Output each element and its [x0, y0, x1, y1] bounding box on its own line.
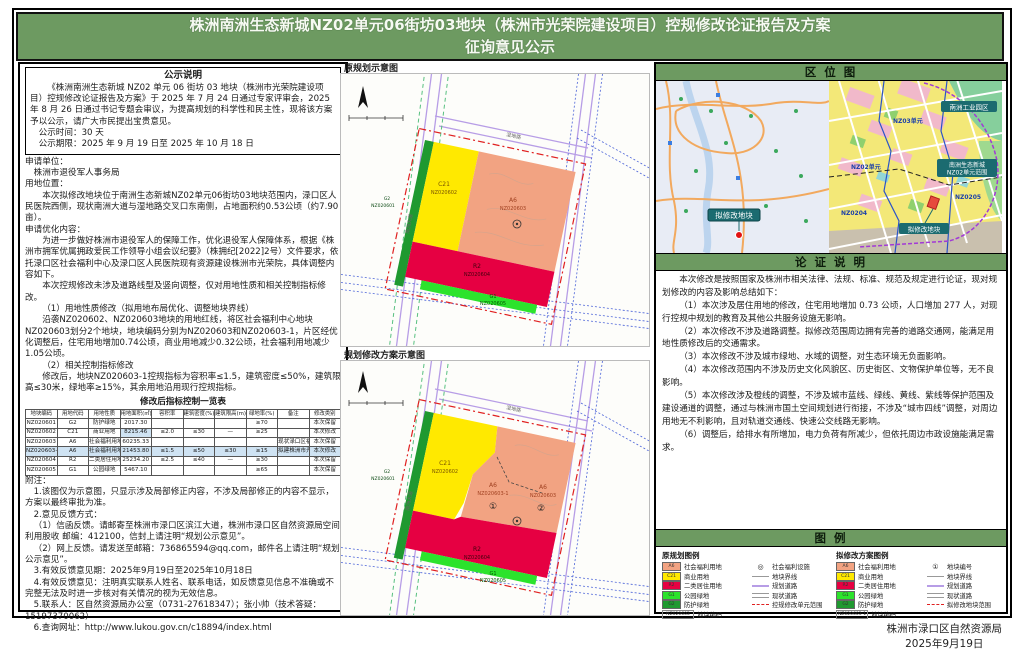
table-cell	[215, 419, 247, 428]
table-cell	[246, 438, 278, 447]
facility-marker-dot	[516, 520, 518, 522]
legend-entry: G1公园绿地	[836, 591, 923, 601]
legend-entry-label: 公园绿地	[858, 591, 883, 600]
legend-code-box: NZ020603	[662, 610, 694, 619]
table-cell: 本次修改	[309, 428, 341, 437]
parcel-g1-id: NZ020605	[480, 578, 506, 584]
unit-label-4: NZ0205	[955, 194, 981, 201]
table-cell: NZ020605	[26, 466, 58, 475]
paragraph: 株洲市退役军人事务局	[25, 168, 341, 179]
table-header-cell: 地块编码	[26, 410, 58, 419]
page-title-line2: 征询意见公示	[18, 37, 1002, 59]
paragraph: （1）用地性质修改（拟用地布局优化、调整地块界线）	[25, 304, 341, 315]
legend-group: 拟修改方案图例A6社会福利用地C21商业用地R2二类居住用地G1公园绿地G2防护…	[836, 549, 996, 627]
legend-entry: 控规修改单元范围	[752, 600, 822, 610]
notice-title: 公示说明	[30, 70, 336, 83]
footer-date: 2025年9月19日	[887, 637, 1003, 652]
zoning-callout-mid1: 南洲生态新城	[949, 161, 985, 169]
table-header-cell: 容积率	[152, 410, 184, 419]
parcel-g1-code: G1	[489, 294, 496, 300]
table-header-cell: 用地代码	[57, 410, 89, 419]
original-plan-map: C21 NZ020602 A6 NZ020603 R2 NZ020604 G1 …	[340, 73, 650, 347]
legend-entry: NZ020603地块编码	[662, 610, 748, 620]
paragraph: （2）本次修改不涉及道路调整。拟修改范围周边拥有完善的道路交通网，能满足用地性质…	[662, 326, 1000, 352]
legend-circle-icon: ①	[927, 563, 944, 571]
paragraph: 5.联系人：区自然资源局办公室（0731-27618347）；张小帅（技术答疑：…	[25, 600, 341, 623]
table-cell: 本次保留	[309, 438, 341, 447]
paragraph: 本次修改是按照国家及株洲市相关法律、法规、标准、规范及规定进行论证，现对规划修改…	[662, 274, 1000, 300]
table-header-cell: 建筑限高(m)	[215, 410, 247, 419]
legend-swatch: R2	[836, 581, 855, 590]
legend-entry-label: 社会福利设施	[772, 562, 810, 571]
table-cell: A6	[57, 447, 89, 456]
table-cell: 本次修改	[309, 447, 341, 456]
parcel-r2-id: NZ020604	[464, 555, 490, 561]
table-row: NZ020601G2防护绿地2017.30≥70本次保留	[26, 419, 341, 428]
table-header-cell: 建筑密度(%)	[183, 410, 215, 419]
table-cell: ≥25	[246, 428, 278, 437]
legend-columns: A6社会福利用地C21商业用地R2二类居住用地G1公园绿地G2防护绿地NZ020…	[836, 562, 996, 619]
modified-plan-map: C21 NZ020602 A6 NZ020603-1 ① A6 NZ020603…	[340, 360, 650, 616]
legend-swatch: R2	[662, 581, 681, 590]
table-cell: 拟建株洲市光荣院	[278, 447, 310, 456]
publicity-period: 公示期限：2025 年 9 月 19 日至 2025 年 10 月 18 日	[30, 139, 336, 150]
table-cell	[152, 466, 184, 475]
legend-group-title: 原规划图例	[662, 550, 822, 561]
legend-swatch: G1	[662, 591, 681, 600]
legend-swatch: C21	[662, 572, 681, 581]
footer: 株洲市渌口区自然资源局 2025年9月19日	[887, 622, 1003, 651]
legend-header: 图 例	[656, 529, 1006, 547]
legend-swatch: G2	[836, 600, 855, 609]
parcel-r2-code: R2	[473, 546, 481, 553]
table-cell	[278, 419, 310, 428]
table-header-cell: 备注	[278, 410, 310, 419]
legend-entry-label: 商业用地	[684, 572, 709, 581]
table-cell	[278, 428, 310, 437]
legend-entry: 地块界线	[927, 572, 996, 582]
legend-symbol-list: ①地块编号地块界线规划道路现状道路拟修改地块范围	[927, 562, 996, 619]
table-cell: 8215.46	[120, 428, 152, 437]
legend-entry: G2防护绿地	[662, 600, 748, 610]
table-cell: 本次保留	[309, 456, 341, 465]
site-marker-dot	[736, 232, 743, 239]
paragraph: 2.意见反馈方式：	[25, 510, 341, 521]
legend-line-icon	[927, 585, 944, 587]
table-header-cell: 用地性质	[89, 410, 121, 419]
table-cell	[278, 456, 310, 465]
table-cell: ≤2.0	[152, 428, 184, 437]
parcel-g2-code: G2	[384, 469, 390, 475]
table-cell: NZ020601	[26, 419, 58, 428]
paragraph: 申请单位：	[25, 157, 341, 168]
legend-entry: 拟修改地块范围	[927, 600, 996, 610]
table-cell: ≤2.5	[152, 456, 184, 465]
table-cell	[183, 466, 215, 475]
parcel-a6-id: NZ020603	[530, 493, 556, 499]
table-cell: ≤1.5	[152, 447, 184, 456]
table-cell: ≤40	[183, 456, 215, 465]
legend-entry: 规划道路	[752, 581, 822, 591]
table-cell: ≤30	[215, 447, 247, 456]
unit-label-3: NZ0204	[841, 210, 867, 217]
table-cell: 防护绿地	[89, 419, 121, 428]
table-cell: G1	[57, 466, 89, 475]
table-cell: 本次保留	[309, 466, 341, 475]
paragraph: 附注：	[25, 476, 341, 487]
table-cell	[278, 466, 310, 475]
table-cell: ≥15	[246, 447, 278, 456]
paragraph: 3.有效反馈意见期：2025年9月19日至2025年10月18日	[25, 566, 341, 577]
paragraph: （4）本次修改范围内不涉及历史文化风貌区、历史街区、文物保护单位等，无不良影响。	[662, 364, 1000, 390]
notice-box: 公示说明 《株洲南洲生态新城 NZ02 单元 06 街坊 03 地块（株洲市光荣…	[25, 67, 341, 155]
legend-symbol-list: ◎社会福利设施地块界线规划道路现状道路控规修改单元范围	[752, 562, 822, 619]
legend-line-icon	[927, 576, 944, 577]
paragraph: 沿袭NZ020602、NZ020603地块的用地红线，将区社会福利中心地块NZ0…	[25, 315, 341, 360]
legend-entry: C21商业用地	[836, 572, 923, 582]
parcel-a6b-code: A6	[489, 482, 497, 489]
legend-entry: 地块界线	[752, 572, 822, 582]
paragraph: 6.查询网址：http://www.lukou.gov.cn/c18894/in…	[25, 623, 341, 634]
paragraph: 4.有效反馈意见：注明真实联系人姓名、联系电话，如反馈意见信息不准确或不完整无法…	[25, 578, 341, 601]
legend-line-icon	[927, 593, 944, 598]
table-row: NZ020602C21商业用地8215.46≤2.0≤30—≥25本次修改	[26, 428, 341, 437]
legend-entry-label: 现状道路	[772, 591, 797, 600]
legend-entry-label: 社会福利用地	[858, 562, 896, 571]
zoning-callout-parcel: 拟修改地块	[908, 225, 941, 234]
unit-label-1: NZ03单元	[893, 117, 923, 125]
page-title-line1: 株洲南洲生态新城NZ02单元06街坊03地块（株洲市光荣院建设项目）控规修改论证…	[18, 15, 1002, 37]
legend-swatch-list: A6社会福利用地C21商业用地R2二类居住用地G1公园绿地G2防护绿地NZ020…	[662, 562, 748, 619]
legend-entry-label: 地块编码	[871, 610, 896, 619]
table-row: NZ020603A6社会福利用地60235.33现状渌口区福利院本次保留	[26, 438, 341, 447]
legend-swatch: A6	[836, 562, 855, 571]
table-cell: —	[215, 456, 247, 465]
parcel-c21-id: NZ020602	[431, 190, 457, 196]
justification-header: 论 证 说 明	[656, 253, 1006, 271]
table-cell	[215, 438, 247, 447]
legend-line-icon	[927, 604, 944, 605]
notice-paragraph: 《株洲南洲生态新城 NZ02 单元 06 街坊 03 地块（株洲市光荣院建设项目…	[30, 83, 336, 128]
location-maps: 拟修改地块	[656, 81, 1006, 253]
parcel-g1-id: NZ020605	[480, 301, 506, 307]
table-cell: 社会福利用地	[89, 447, 121, 456]
table-row: NZ020603-1A6社会福利用地21453.80≤1.5≤50≤30≥15拟…	[26, 447, 341, 456]
location-map-header: 区 位 图	[656, 64, 1006, 81]
table-cell	[152, 438, 184, 447]
parcel-c21-code: C21	[438, 181, 450, 188]
table-cell: 公园绿地	[89, 466, 121, 475]
table-cell: NZ020603	[26, 438, 58, 447]
legend-entry-label: 规划道路	[772, 581, 797, 590]
legend-swatch: G1	[836, 591, 855, 600]
notes: 附注：1.该图仅为示意图，只显示涉及局部修正内容，不涉及局部修正的内容不显示，方…	[25, 476, 341, 635]
legend-line-icon	[752, 593, 769, 598]
table-cell: 商业用地	[89, 428, 121, 437]
table-cell	[183, 419, 215, 428]
legend-entry-label: 防护绿地	[858, 600, 883, 609]
parcel-a6b-id: NZ020603-1	[477, 491, 508, 497]
legend-entry: G1公园绿地	[662, 591, 748, 601]
paragraph: 为进一步做好株洲市退役军人的保障工作，优化退役军人保障体系，根据《株洲市拥军优属…	[25, 236, 341, 281]
table-cell: 本次保留	[309, 419, 341, 428]
legend-entry-label: 控规修改单元范围	[772, 600, 822, 609]
table-cell: NZ020602	[26, 428, 58, 437]
legend-entry: R2二类居住用地	[662, 581, 748, 591]
page-title: 株洲南洲生态新城NZ02单元06街坊03地块（株洲市光荣院建设项目）控规修改论证…	[16, 12, 1004, 61]
paragraph: 本次拟修改地块位于南洲生态新城NZ02单元06街坊03地块范围内，渌口区人民医院…	[25, 191, 341, 225]
table-cell	[152, 419, 184, 428]
legend-entry-label: 现状道路	[947, 591, 972, 600]
legend-entry: ①地块编号	[927, 562, 996, 572]
legend-entry: R2二类居住用地	[836, 581, 923, 591]
footer-agency: 株洲市渌口区自然资源局	[887, 622, 1003, 637]
table-cell: ≤30	[183, 428, 215, 437]
table-header-cell: 绿地率(%)	[246, 410, 278, 419]
table-cell: NZ020603-1	[26, 447, 58, 456]
table-cell	[183, 438, 215, 447]
legend-entry-label: 地块界线	[947, 572, 972, 581]
legend-entry-label: 二类居住用地	[858, 581, 896, 590]
paragraph: （1）本次涉及居住用地的修改，住宅用地增加 0.73 公顷，人口增加 277 人…	[662, 300, 1000, 326]
table-cell: 25234.20	[120, 456, 152, 465]
table-cell: 5467.10	[120, 466, 152, 475]
table-row: NZ020604R2二类居住用地25234.20≤2.5≤40—≥30本次保留	[26, 456, 341, 465]
table-title: 修改后指标控制一览表	[25, 397, 341, 408]
table-header-cell: 用地面积(㎡)	[120, 410, 152, 419]
legend-circle-icon: ◎	[752, 563, 769, 571]
publicity-time: 公示时间：30 天	[30, 128, 336, 139]
table-cell: A6	[57, 438, 89, 447]
table-row: NZ020605G1公园绿地5467.10≥65本次保留	[26, 466, 341, 475]
parcel-number-1: ①	[489, 502, 497, 512]
city-map: 拟修改地块	[656, 81, 829, 253]
zoning-map: NZ03单元 NZ02单元 NZ0204 NZ0205 南洲工业园区 南洲生态新…	[829, 81, 1002, 253]
parcel-a6-code: A6	[539, 484, 547, 491]
legend-entry: C21商业用地	[662, 572, 748, 582]
parcel-c21-code: C21	[439, 460, 451, 467]
legend-entry-label: 防护绿地	[684, 600, 709, 609]
unit-label-2: NZ02单元	[851, 163, 881, 171]
table-cell: 现状渌口区福利院	[278, 438, 310, 447]
legend-entry-label: 社会福利用地	[684, 562, 722, 571]
table-cell: C21	[57, 428, 89, 437]
table-cell: 二类居住用地	[89, 456, 121, 465]
paragraph: （2）网上反馈。请发送至邮箱：736865594@qq.com，邮件名上请注明“…	[25, 544, 341, 567]
legend-swatch: C21	[836, 572, 855, 581]
parcel-c21-id: NZ020602	[432, 469, 458, 475]
legend-entry: NZ020603-1地块编码	[836, 610, 923, 620]
legend-line-icon	[752, 576, 769, 577]
public-notice-poster: 株洲南洲生态新城NZ02单元06街坊03地块（株洲市光荣院建设项目）控规修改论证…	[0, 0, 1024, 656]
paragraph: 用地位置：	[25, 179, 341, 190]
legend: 原规划图例A6社会福利用地C21商业用地R2二类居住用地G1公园绿地G2防护绿地…	[656, 547, 1006, 629]
paragraph: （2）相关控制指标修改	[25, 361, 341, 372]
paragraph: （3）本次修改不涉及城市绿地、水域的调整，对生态环境无负面影响。	[662, 351, 1000, 364]
legend-entry-label: 二类居住用地	[684, 581, 722, 590]
paragraph: （6）调整后，给排水有所增加，电力负荷有所减少，但依托周边市政设施能满足需求。	[662, 429, 1000, 455]
legend-entry: 现状道路	[927, 591, 996, 601]
legend-columns: A6社会福利用地C21商业用地R2二类居住用地G1公园绿地G2防护绿地NZ020…	[662, 562, 822, 619]
table-header-cell: 修改类别	[309, 410, 341, 419]
left-body-text: 申请单位：株洲市退役军人事务局用地位置：本次拟修改地块位于南洲生态新城NZ02单…	[25, 157, 341, 395]
legend-code-box: NZ020603-1	[836, 610, 868, 619]
facility-marker-dot	[516, 223, 518, 225]
legend-group: 原规划图例A6社会福利用地C21商业用地R2二类居住用地G1公园绿地G2防护绿地…	[662, 549, 822, 627]
legend-entry-label: 商业用地	[858, 572, 883, 581]
legend-entry: 现状道路	[752, 591, 822, 601]
legend-entry-label: 公园绿地	[684, 591, 709, 600]
table-cell: NZ020604	[26, 456, 58, 465]
legend-entry-label: 规划道路	[947, 581, 972, 590]
legend-entry: ◎社会福利设施	[752, 562, 822, 572]
legend-entry: A6社会福利用地	[836, 562, 923, 572]
parcel-g2-code: G2	[384, 196, 390, 202]
legend-swatch: G2	[662, 600, 681, 609]
paragraph: （1）信函反馈。请邮寄至株洲市渌口区滨江大道，株洲市渌口区自然资源局空间利用股收…	[25, 521, 341, 544]
justification-text: 本次修改是按照国家及株洲市相关法律、法规、标准、规范及规定进行论证，现对规划修改…	[656, 271, 1006, 529]
table-cell: 60235.33	[120, 438, 152, 447]
table-cell: G2	[57, 419, 89, 428]
parcel-number-2: ②	[537, 504, 545, 514]
parcel-a6-code: A6	[509, 197, 517, 204]
table-cell: ≥70	[246, 419, 278, 428]
legend-group-title: 拟修改方案图例	[836, 550, 996, 561]
parcel-r2-id: NZ020604	[464, 272, 490, 278]
legend-entry: 规划道路	[927, 581, 996, 591]
legend-entry: A6社会福利用地	[662, 562, 748, 572]
legend-swatch: A6	[662, 562, 681, 571]
table-cell: ≤50	[183, 447, 215, 456]
legend-entry-label: 地块界线	[772, 572, 797, 581]
paragraph: 修改后，地块NZ020603-1控规指标为容积率≤1.5，建筑密度≤50%，建筑…	[25, 372, 341, 395]
legend-swatch-list: A6社会福利用地C21商业用地R2二类居住用地G1公园绿地G2防护绿地NZ020…	[836, 562, 923, 619]
paragraph: 申请优化内容：	[25, 225, 341, 236]
paragraph: （5）本次修改涉及橙线的调整，不涉及城市蓝线、绿线、黄线、紫线等保护范围及建设通…	[662, 390, 1000, 429]
table-cell: 2017.30	[120, 419, 152, 428]
parcel-g1-code: G1	[489, 571, 496, 577]
table-cell: —	[215, 428, 247, 437]
spec-table: 地块编码用地代码用地性质用地面积(㎡)容积率建筑密度(%)建筑限高(m)绿地率(…	[25, 409, 341, 475]
zoning-callout-mid2: NZ02单元范围	[947, 169, 987, 177]
paragraph: 本次控规修改未涉及道路线型及竖向调整，仅对用地性质和相关控制指标修改。	[25, 281, 341, 304]
table-cell: 21453.80	[120, 447, 152, 456]
legend-entry-label: 地块编号	[947, 562, 972, 571]
paragraph: 1.该图仅为示意图，只显示涉及局部修正内容，不涉及局部修正的内容不显示，方案以最…	[25, 487, 341, 510]
left-info-panel: 公示说明 《株洲南洲生态新城 NZ02 单元 06 街坊 03 地块（株洲市光荣…	[18, 62, 348, 612]
legend-entry-label: 地块编码	[697, 610, 722, 619]
legend-line-icon	[752, 585, 769, 587]
table-cell: R2	[57, 456, 89, 465]
table-cell: ≥30	[246, 456, 278, 465]
parcel-g2-id: NZ020601	[371, 476, 395, 482]
right-panel: 区 位 图	[654, 62, 1008, 614]
parcel-r2-code: R2	[473, 263, 481, 270]
zoning-callout-top: 南洲工业园区	[950, 103, 990, 112]
parcel-a6-id: NZ020603	[500, 206, 526, 212]
legend-line-icon	[752, 604, 769, 605]
legend-entry-label: 拟修改地块范围	[947, 600, 991, 609]
poster-frame: 株洲南洲生态新城NZ02单元06街坊03地块（株洲市光荣院建设项目）控规修改论证…	[12, 8, 1012, 618]
plan-maps-panel: 原规划示意图	[340, 62, 652, 614]
table-cell: ≥65	[246, 466, 278, 475]
table-cell	[215, 466, 247, 475]
city-callout-label: 拟修改地块	[715, 210, 753, 220]
parcel-g2-id: NZ020601	[371, 203, 395, 209]
table-cell: 社会福利用地	[89, 438, 121, 447]
legend-entry: G2防护绿地	[836, 600, 923, 610]
